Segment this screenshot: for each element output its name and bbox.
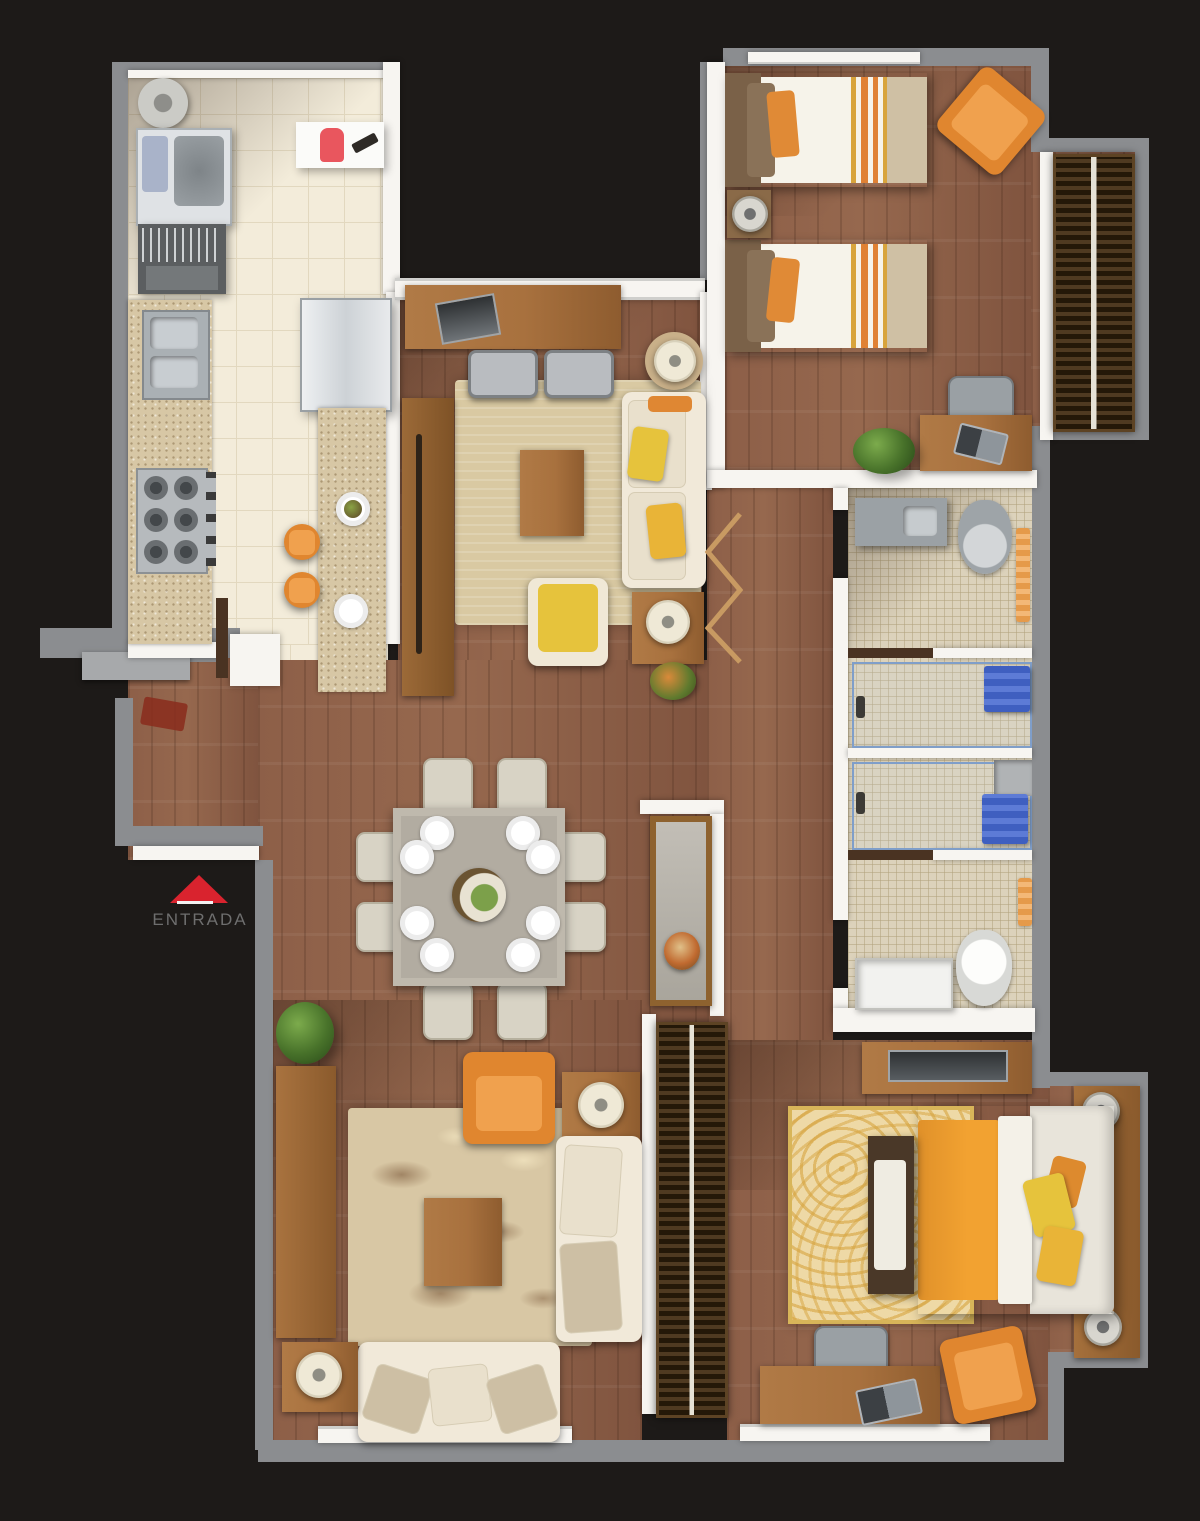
built-in-closet — [656, 1022, 728, 1418]
wall-segment — [112, 62, 128, 660]
toilet — [956, 930, 1012, 1006]
armchair-seat — [538, 584, 598, 652]
double-bed — [918, 1106, 1114, 1314]
armchair-yellow — [528, 578, 608, 666]
gas-stove — [136, 468, 208, 574]
wardrobe — [1053, 154, 1135, 432]
bedside-lamp — [732, 196, 768, 232]
towel-blue — [984, 666, 1030, 712]
towel-blue — [982, 794, 1028, 844]
wall-segment — [642, 1014, 656, 1414]
wall-segment — [1135, 150, 1149, 440]
rack-shelf — [146, 266, 218, 290]
sink-basin — [150, 317, 198, 349]
wall-segment — [258, 1440, 1064, 1462]
plate — [526, 840, 560, 874]
wall-segment — [933, 850, 1032, 860]
pillow-orange — [766, 90, 800, 158]
entrance-triangle-base — [177, 901, 213, 904]
burner — [144, 476, 168, 500]
table-lamp — [296, 1352, 342, 1398]
wall-segment — [1032, 1072, 1148, 1086]
sofa — [358, 1342, 560, 1442]
table-lamp — [654, 340, 696, 382]
wall-segment — [133, 846, 259, 860]
sofa-cushion — [559, 1144, 623, 1238]
bar-stool — [284, 524, 320, 560]
sink-bowl — [903, 506, 937, 536]
pillow-yellow — [627, 426, 670, 483]
plate — [526, 906, 560, 940]
window-wall — [748, 52, 920, 64]
wall-segment — [1032, 438, 1050, 1088]
entry-corridor-wall — [115, 826, 263, 846]
shower-head — [856, 792, 865, 814]
towels-orange — [1016, 528, 1030, 622]
lounge-chair — [544, 350, 614, 398]
twin-bed — [725, 73, 927, 187]
table-lamp — [646, 600, 690, 644]
wall-segment — [833, 578, 848, 920]
wall-segment — [128, 642, 220, 658]
window-wall — [740, 1424, 990, 1441]
washing-machine — [136, 128, 232, 226]
wall-segment — [933, 648, 1032, 658]
bench — [868, 1136, 914, 1294]
island-counter — [318, 408, 386, 692]
side-cabinet — [276, 1066, 336, 1338]
bed-runner-stripes — [847, 244, 887, 348]
plate-setting — [334, 594, 368, 628]
towels-orange — [1018, 878, 1032, 926]
burner — [174, 508, 198, 532]
cabinet-handle — [416, 434, 422, 654]
wall-segment — [707, 470, 1037, 488]
plate — [506, 938, 540, 972]
tv-panel — [888, 1050, 1008, 1082]
sofa-cushion — [427, 1363, 493, 1427]
door-leaf — [848, 850, 933, 860]
dining-chair — [497, 982, 547, 1040]
plate — [420, 938, 454, 972]
washer-drum — [174, 136, 224, 206]
bar-stool — [284, 572, 320, 608]
sofa-cushion — [485, 1362, 560, 1436]
tall-cabinet — [402, 398, 454, 696]
burner — [174, 540, 198, 564]
accordion-divider — [700, 512, 746, 664]
burner — [174, 476, 198, 500]
table-lamp — [578, 1082, 624, 1128]
wall-segment — [707, 62, 725, 488]
coffee-table — [520, 450, 584, 536]
bed-foot — [887, 244, 927, 348]
plant — [276, 1002, 334, 1064]
wall-segment — [230, 634, 280, 686]
entry-corridor-wall — [115, 698, 133, 830]
shower-head — [856, 696, 865, 718]
stove-knobs — [206, 472, 216, 566]
armchair-orange — [463, 1052, 555, 1144]
sofa — [556, 1136, 642, 1342]
plate — [400, 840, 434, 874]
wall-segment — [1040, 152, 1053, 440]
wall-segment — [640, 800, 724, 814]
lounge-chair — [468, 350, 538, 398]
sink-basin — [150, 356, 198, 388]
door-leaf — [848, 648, 933, 658]
wall-segment — [833, 1008, 1035, 1032]
sheet-fold — [998, 1116, 1032, 1304]
sofa-cushion — [559, 1240, 623, 1334]
wall-segment — [383, 62, 400, 294]
twin-bed — [725, 240, 927, 352]
rack-bars — [142, 228, 222, 262]
plant — [853, 428, 915, 474]
bed-foot — [887, 77, 927, 183]
vanity-sink — [855, 958, 953, 1010]
bench-cushion — [874, 1160, 906, 1270]
refrigerator — [300, 298, 392, 412]
floor-plan: ENTRADA — [0, 0, 1200, 1521]
burner — [144, 508, 168, 532]
toilet — [958, 500, 1012, 574]
shower-partition — [848, 748, 1032, 758]
sofa-cushion — [361, 1362, 436, 1436]
flower-bowl — [664, 932, 700, 970]
utility-rack — [138, 224, 226, 294]
centerpiece — [452, 868, 506, 922]
wall-segment — [1031, 138, 1149, 152]
shower-tray — [994, 760, 1032, 796]
wall-segment — [833, 488, 848, 510]
entrance-triangle-icon — [170, 875, 228, 903]
bed-runner-stripes — [847, 77, 887, 183]
sofa — [622, 392, 706, 588]
coffee-table — [424, 1198, 502, 1286]
fire-extinguisher — [320, 128, 344, 162]
armchair-orange — [938, 1324, 1038, 1426]
plate — [400, 906, 434, 940]
vanity-sink — [855, 498, 947, 546]
water-heater — [138, 78, 188, 128]
duvet-orange — [918, 1120, 1000, 1300]
console-table — [656, 822, 706, 1000]
entrance-label: ENTRADA — [138, 910, 262, 930]
food-bowl — [344, 500, 362, 518]
washer-panel — [142, 136, 168, 192]
door-leaf — [216, 598, 228, 678]
pillow-orange — [648, 396, 692, 412]
flower-pot — [650, 662, 696, 700]
dining-chair — [423, 982, 473, 1040]
burner — [144, 540, 168, 564]
double-sink — [142, 310, 210, 400]
wall-segment — [128, 70, 386, 78]
wall-segment — [255, 860, 273, 1450]
wall-segment — [710, 814, 724, 1016]
pillow-yellow — [645, 502, 686, 559]
